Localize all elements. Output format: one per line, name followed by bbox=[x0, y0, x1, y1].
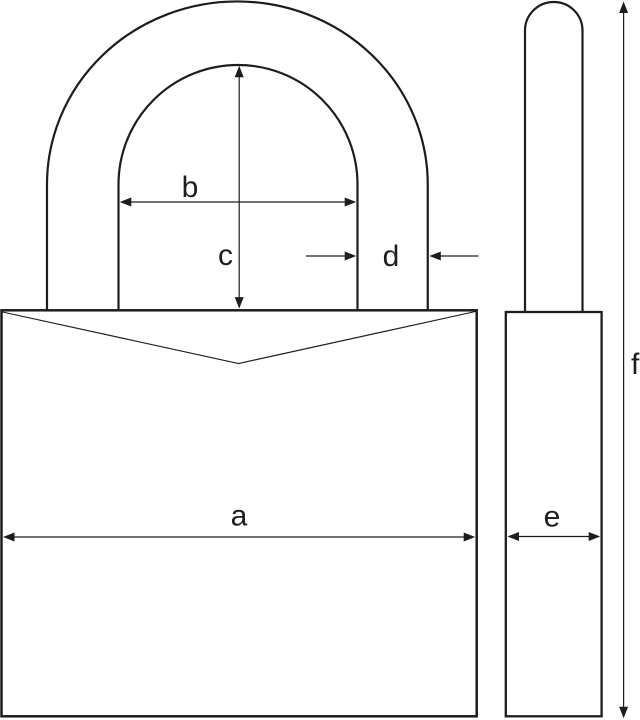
svg-text:b: b bbox=[182, 171, 199, 204]
svg-text:a: a bbox=[231, 500, 248, 533]
svg-text:e: e bbox=[544, 501, 561, 534]
svg-text:d: d bbox=[383, 240, 400, 273]
svg-text:c: c bbox=[218, 239, 233, 272]
svg-text:f: f bbox=[631, 348, 640, 381]
